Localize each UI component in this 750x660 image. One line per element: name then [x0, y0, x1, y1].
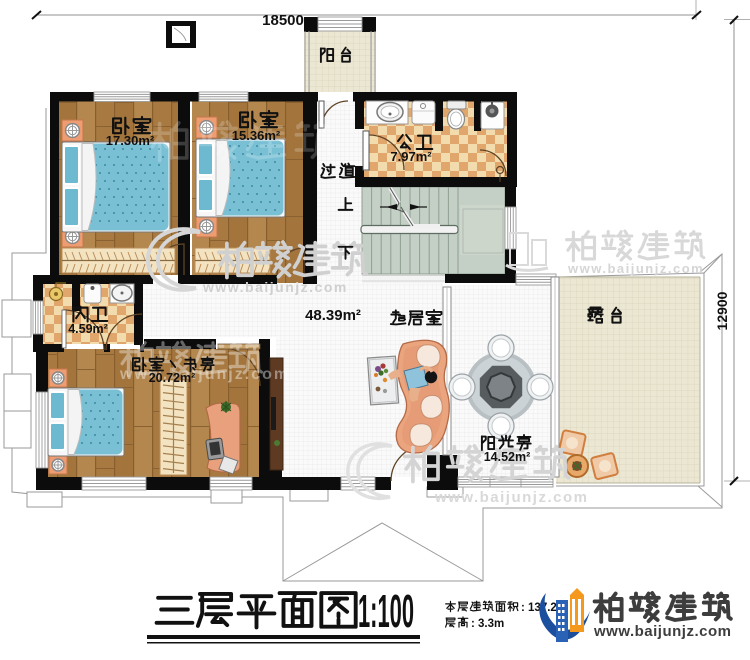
svg-text:www.baijunjz.com: www.baijunjz.com — [593, 623, 731, 640]
svg-text:17.30m²: 17.30m² — [106, 133, 155, 148]
svg-text:: 3.3m: : 3.3m — [471, 618, 504, 630]
svg-text:4.59m²: 4.59m² — [68, 322, 108, 336]
svg-text:20.72m²: 20.72m² — [149, 371, 196, 385]
svg-text:14.52m²: 14.52m² — [484, 450, 531, 464]
svg-text:7.97m²: 7.97m² — [390, 149, 432, 164]
svg-text:48.39m²: 48.39m² — [305, 307, 361, 324]
svg-text:12900: 12900 — [714, 291, 730, 330]
svg-text:: 137.2: : 137.2 — [521, 602, 557, 614]
svg-text:1:100: 1:100 — [358, 585, 414, 637]
svg-text:www.baijunjz.com: www.baijunjz.com — [202, 279, 348, 295]
svg-text:15.36m²: 15.36m² — [232, 128, 281, 143]
svg-text:18500: 18500 — [262, 12, 304, 29]
svg-text:www.baijunjz.com: www.baijunjz.com — [434, 489, 588, 506]
svg-text:www.baijunjz.com: www.baijunjz.com — [567, 261, 704, 276]
